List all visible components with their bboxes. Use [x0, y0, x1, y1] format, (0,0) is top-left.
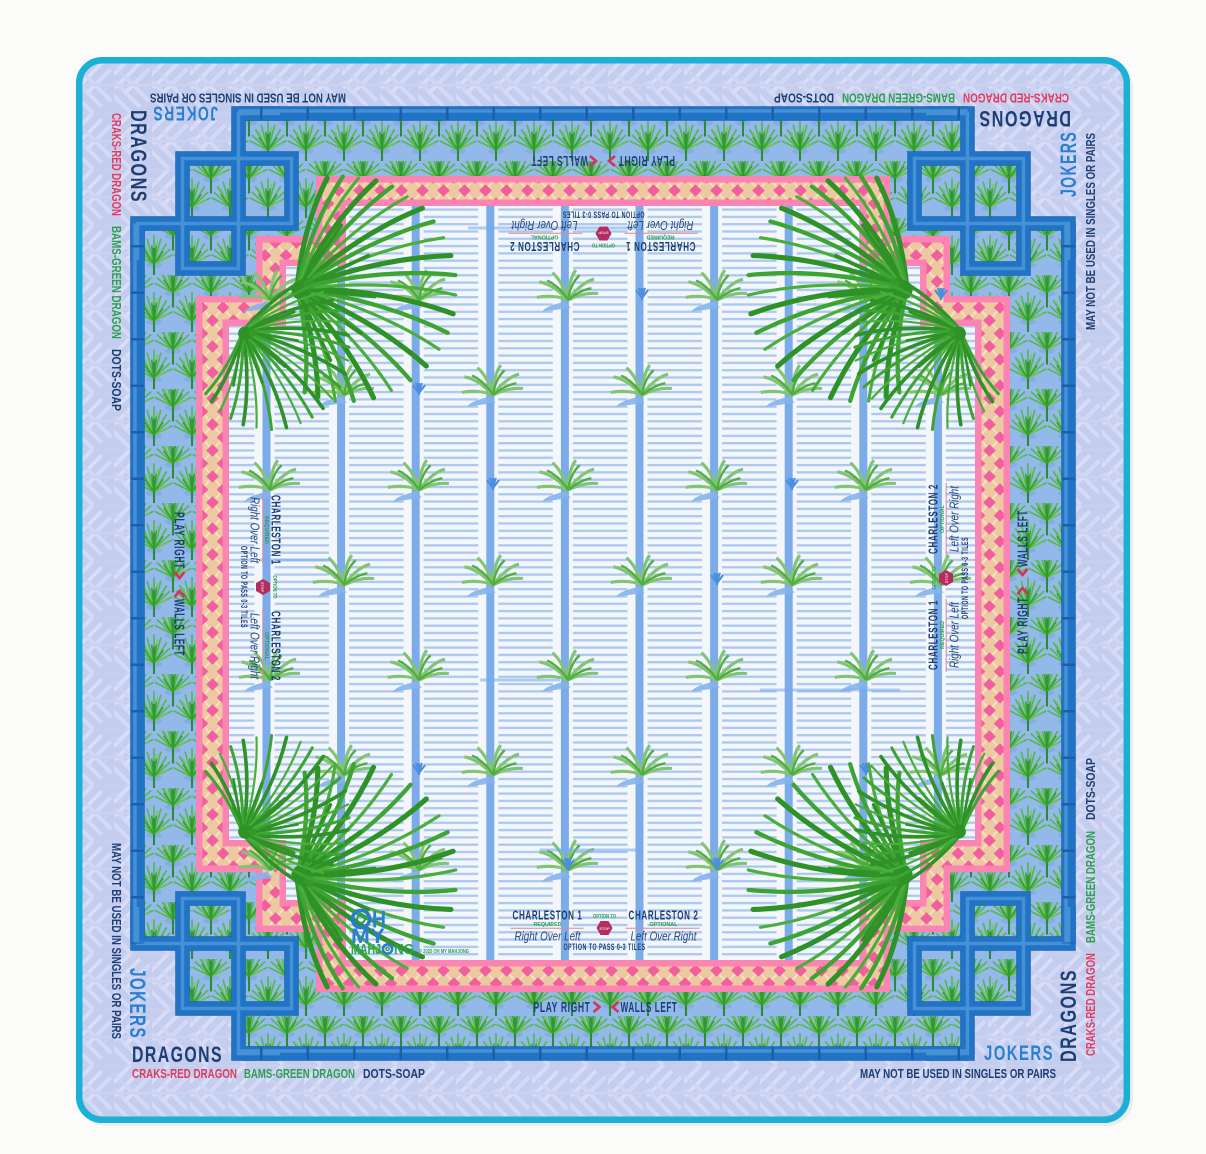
svg-text:MAY NOT BE USED IN SINGLES OR: MAY NOT BE USED IN SINGLES OR PAIRS: [109, 843, 124, 1039]
svg-text:MAY NOT BE USED IN SINGLES OR: MAY NOT BE USED IN SINGLES OR PAIRS: [860, 1066, 1056, 1081]
svg-text:MAY NOT BE USED IN SINGLES OR: MAY NOT BE USED IN SINGLES OR PAIRS: [150, 91, 346, 106]
svg-text:JOKERS: JOKERS: [984, 1042, 1054, 1065]
svg-text:BAMS-GREEN DRAGON: BAMS-GREEN DRAGON: [244, 1066, 355, 1081]
svg-text:JOKERS: JOKERS: [1056, 131, 1081, 197]
svg-text:MAY NOT BE USED IN SINGLES OR: MAY NOT BE USED IN SINGLES OR PAIRS: [1083, 133, 1098, 330]
svg-text:BAMS-GREEN DRAGON: BAMS-GREEN DRAGON: [109, 226, 124, 339]
svg-text:BAMS-GREEN DRAGON: BAMS-GREEN DRAGON: [842, 91, 955, 106]
svg-text:DOTS-SOAP: DOTS-SOAP: [109, 349, 124, 411]
svg-text:CRAKS-RED DRAGON: CRAKS-RED DRAGON: [109, 113, 124, 216]
svg-text:MAHJ: MAHJ: [351, 942, 381, 958]
svg-text:DOTS-SOAP: DOTS-SOAP: [363, 1066, 425, 1081]
svg-text:DRAGONS: DRAGONS: [132, 1042, 223, 1067]
svg-text:DOTS-SOAP: DOTS-SOAP: [1083, 758, 1098, 820]
svg-text:BAMS-GREEN DRAGON: BAMS-GREEN DRAGON: [1083, 831, 1098, 943]
svg-text:© 2025 OH MY MAHJONG: © 2025 OH MY MAHJONG: [419, 948, 469, 955]
svg-text:DOTS-SOAP: DOTS-SOAP: [774, 91, 834, 106]
svg-text:NG: NG: [394, 942, 414, 958]
svg-text:DRAGONS: DRAGONS: [1056, 969, 1081, 1062]
svg-text:CRAKS-RED DRAGON: CRAKS-RED DRAGON: [963, 91, 1069, 106]
svg-text:DRAGONS: DRAGONS: [126, 110, 151, 203]
svg-text:CRAKS-RED DRAGON: CRAKS-RED DRAGON: [132, 1066, 237, 1081]
svg-text:DRAGONS: DRAGONS: [978, 106, 1071, 131]
svg-text:JOKERS: JOKERS: [125, 968, 150, 1039]
svg-text:CRAKS-RED DRAGON: CRAKS-RED DRAGON: [1083, 953, 1098, 1056]
